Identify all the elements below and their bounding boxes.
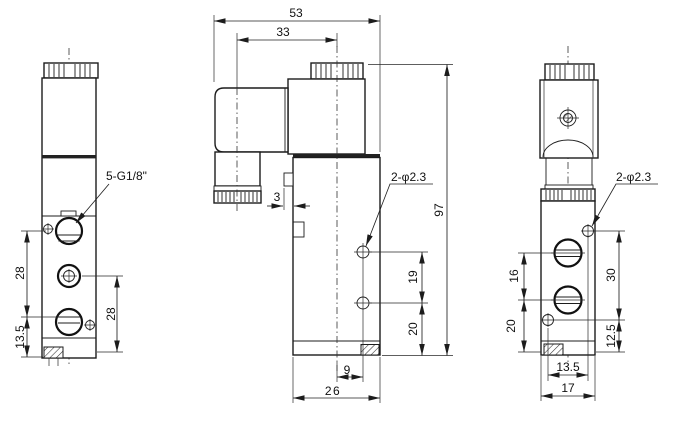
leader-line [592, 184, 658, 226]
dim-port-spacing: 16 [507, 269, 521, 283]
gland-collar [214, 186, 261, 191]
dim-screw-spacing: 30 [604, 268, 618, 282]
face-tab [61, 211, 76, 216]
valve-body [541, 201, 595, 355]
dim-hole-offset: 9 [344, 363, 351, 377]
neck-lines [546, 158, 592, 185]
cable-gland [214, 191, 261, 203]
dim-hole-spacing: 19 [406, 270, 420, 284]
dim-overall-height: 97 [432, 203, 446, 217]
dim-gland-offset: 33 [276, 25, 290, 39]
dim-hole-bottom: 20 [406, 322, 420, 336]
side-step-tab [284, 173, 293, 186]
dim-port-spacing: 28 [13, 266, 27, 280]
base-hatch-tab [361, 345, 379, 356]
end-view [540, 46, 598, 366]
dim-screw-width: 13.5 [556, 360, 580, 374]
drawing-svg: 28 13.5 28 5-G1/8" [0, 0, 678, 426]
dim-bottom-offset: 13.5 [13, 325, 27, 349]
base-hatch-tab [44, 347, 63, 358]
solenoid-coil [288, 79, 365, 154]
dim-body-width: 26 [325, 384, 341, 398]
hole-label: 2-φ2.3 [391, 170, 426, 184]
thread-label: 5-G1/8" [106, 169, 147, 183]
base-hatch-tab [544, 344, 563, 355]
base-ticks [49, 358, 58, 366]
dim-port-bottom: 20 [504, 319, 518, 333]
din-connector-housing [215, 88, 288, 152]
dim-step: 3 [274, 190, 281, 204]
hole-label: 2-φ2.3 [616, 170, 651, 184]
pilot-cap [545, 64, 594, 80]
connector-plug [215, 152, 260, 186]
valve-dimension-drawing: 28 13.5 28 5-G1/8" [0, 0, 678, 426]
body-joint-band [42, 155, 96, 158]
dim-overall-width: 53 [289, 6, 303, 20]
side-view [214, 33, 380, 371]
dim-body-width: 17 [561, 381, 575, 395]
dim-screw-bottom: 12.5 [604, 324, 618, 348]
dim-port-bottom: 28 [104, 307, 118, 321]
